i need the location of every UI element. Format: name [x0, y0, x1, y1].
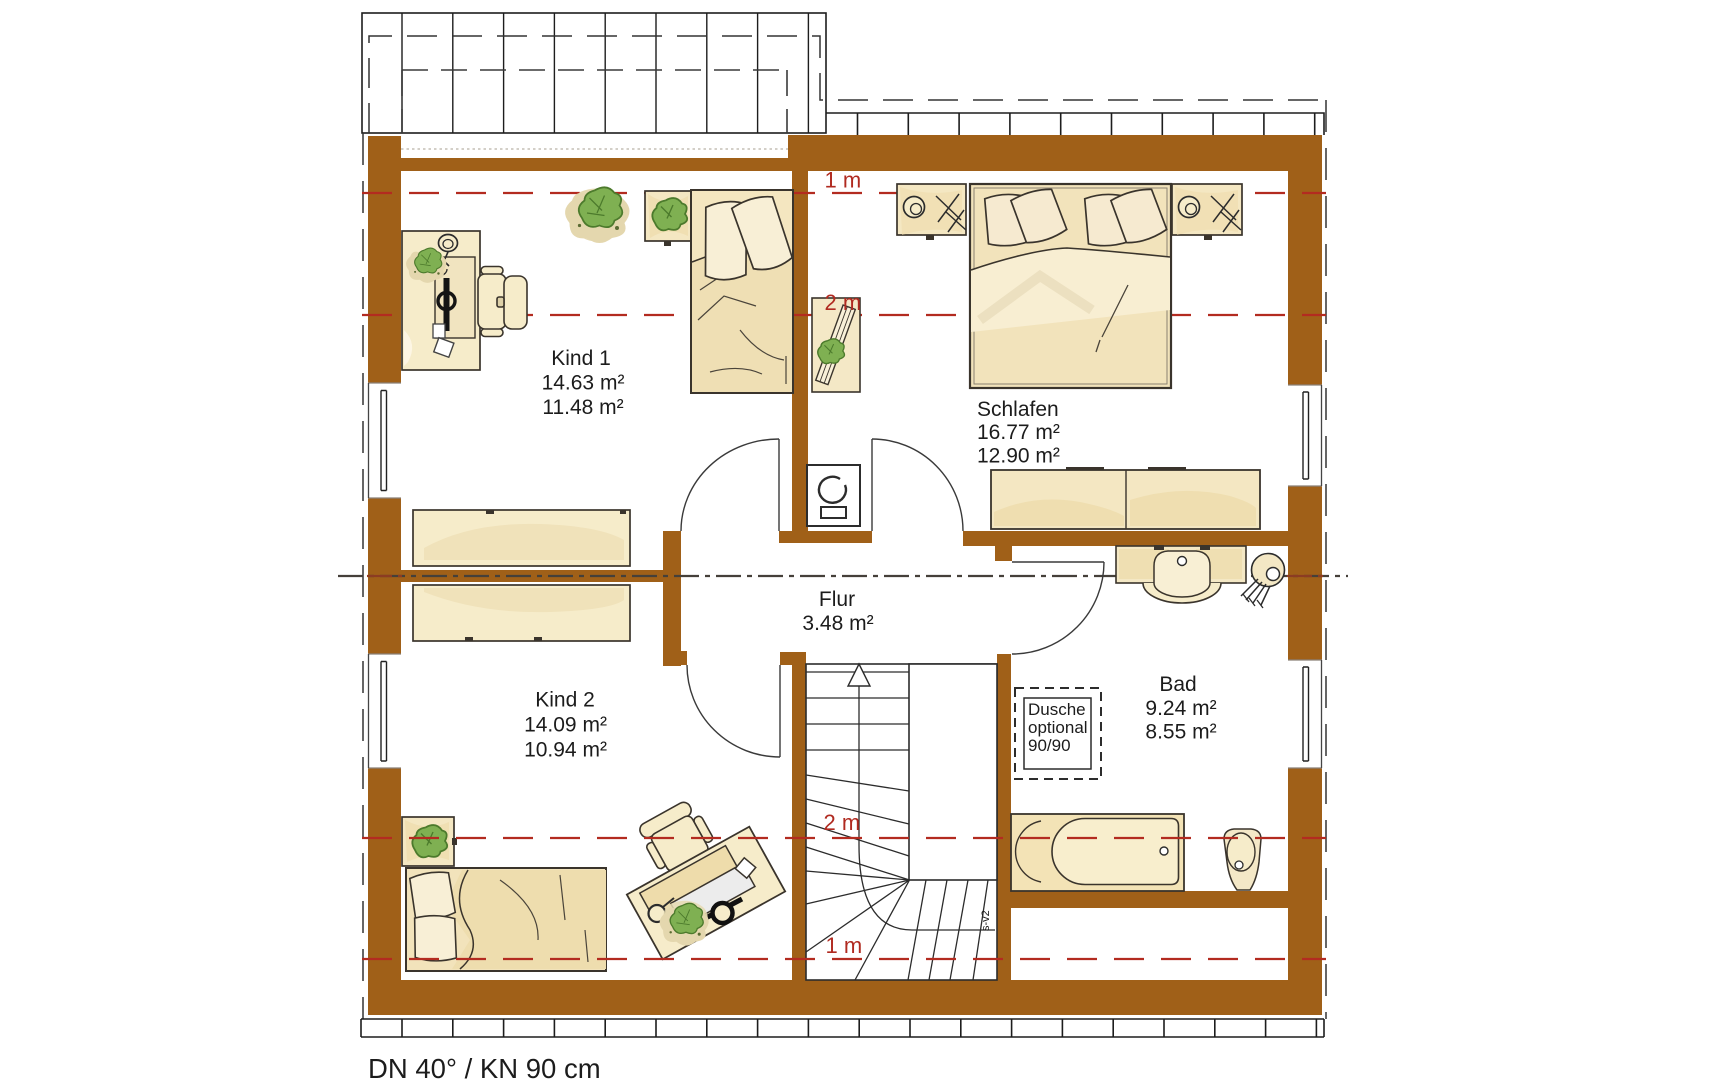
svg-text:Flur: Flur	[819, 588, 855, 611]
svg-text:Kind 1: Kind 1	[551, 347, 611, 370]
svg-text:s-v2: s-v2	[980, 910, 992, 931]
svg-text:3.48 m²: 3.48 m²	[802, 612, 873, 635]
svg-text:Bad: Bad	[1159, 673, 1196, 696]
svg-text:90/90: 90/90	[1028, 736, 1071, 755]
svg-text:2 m: 2 m	[824, 810, 861, 835]
svg-text:Schlafen: Schlafen	[977, 398, 1059, 421]
svg-text:Dusche: Dusche	[1028, 700, 1086, 719]
svg-text:12.90 m²: 12.90 m²	[977, 445, 1060, 468]
svg-text:2 m: 2 m	[825, 290, 862, 315]
svg-text:11.48 m²: 11.48 m²	[542, 396, 623, 419]
svg-text:9.24 m²: 9.24 m²	[1145, 697, 1216, 720]
svg-text:1 m: 1 m	[825, 168, 862, 193]
svg-text:DN 40° / KN 90 cm: DN 40° / KN 90 cm	[368, 1053, 601, 1084]
svg-text:14.09 m²: 14.09 m²	[524, 714, 607, 737]
svg-text:Kind 2: Kind 2	[535, 689, 595, 712]
svg-text:16.77 m²: 16.77 m²	[977, 421, 1060, 444]
svg-text:14.63 m²: 14.63 m²	[542, 372, 625, 395]
svg-text:1 m: 1 m	[826, 933, 863, 958]
svg-text:optional: optional	[1028, 718, 1088, 737]
svg-text:8.55 m²: 8.55 m²	[1145, 721, 1216, 744]
svg-text:10.94 m²: 10.94 m²	[524, 739, 607, 762]
